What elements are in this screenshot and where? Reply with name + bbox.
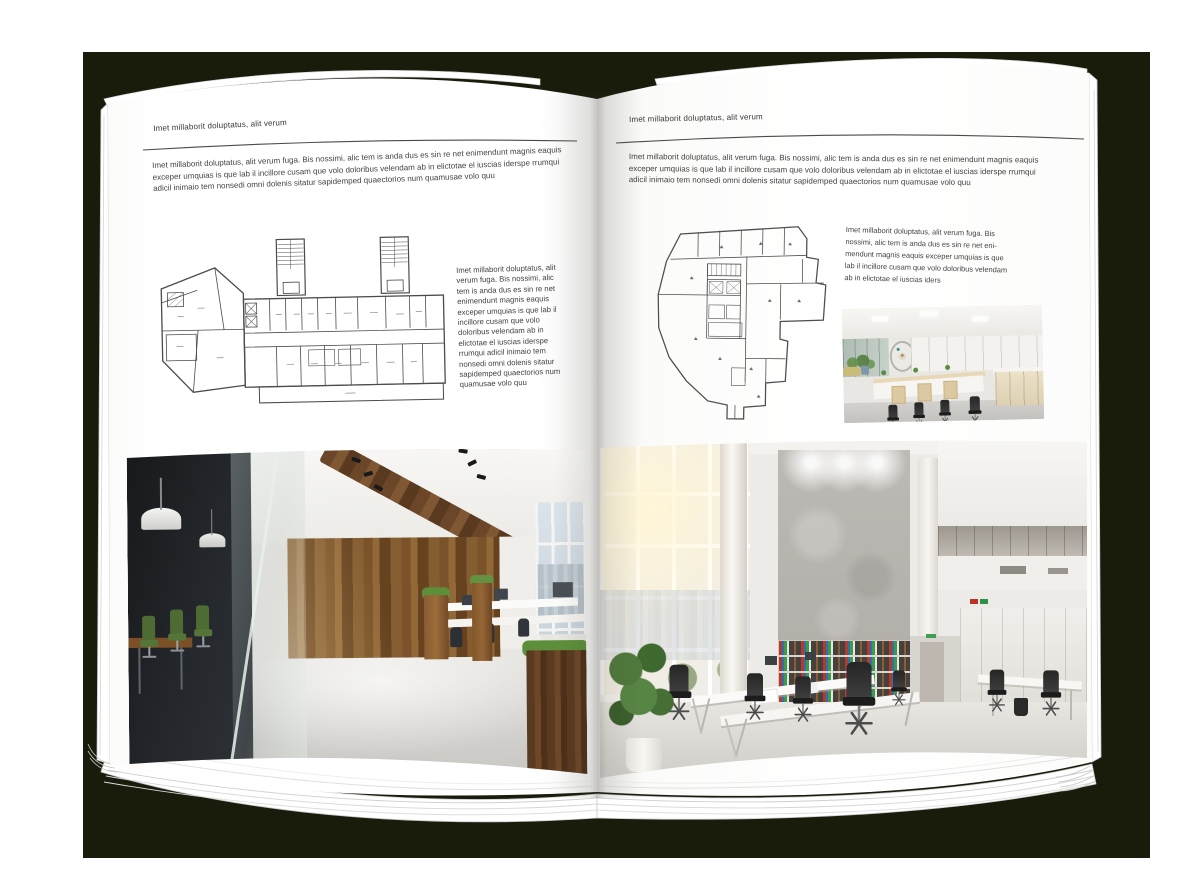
black-chair — [913, 402, 925, 423]
green-chair — [140, 616, 158, 660]
light-panel — [972, 316, 988, 321]
vent — [1000, 566, 1026, 574]
green-chair — [194, 605, 212, 649]
desk-leg — [1070, 690, 1072, 720]
safety-sign-green — [980, 599, 988, 604]
monitor — [805, 652, 816, 660]
safety-sign-red — [970, 599, 978, 604]
concrete-wall — [778, 450, 910, 662]
black-chair — [968, 396, 982, 423]
plant-pot — [626, 738, 662, 772]
door — [920, 642, 944, 702]
planter-box — [472, 583, 493, 661]
monitor — [553, 582, 573, 597]
green-chair — [168, 609, 186, 653]
partitions — [910, 335, 1043, 372]
drawer-unit — [891, 386, 905, 404]
pendant-lamp — [199, 533, 225, 547]
stair-accent — [901, 354, 904, 357]
black-chair — [887, 405, 899, 423]
glass-meeting-room — [127, 446, 308, 768]
potted-plant-leaves — [600, 636, 686, 746]
desk-plant — [945, 365, 950, 370]
planter-box — [424, 595, 449, 659]
page-stack-left-edge — [97, 103, 110, 764]
sofa-yellow — [843, 367, 861, 376]
balcony-slot — [938, 526, 1087, 556]
planter-box-large — [526, 650, 587, 777]
right-plan-caption: Imet millaborit doluptatus, alit verum f… — [844, 224, 1010, 289]
pendant-lamp — [141, 508, 181, 530]
black-chair — [988, 670, 1007, 710]
left-plan-caption: Imet millaborit doluptatus, alit verum f… — [456, 263, 566, 391]
stair-accent — [897, 348, 900, 351]
small-office-photo — [842, 305, 1044, 423]
left-floor-plan-image — [156, 233, 452, 417]
desk-plant — [881, 370, 886, 375]
cabinets — [960, 608, 1087, 704]
lamp-cord — [160, 478, 162, 510]
chair-blue — [861, 366, 869, 375]
mezzanine — [938, 440, 1087, 526]
exit-sign — [926, 634, 936, 638]
table-leg — [180, 648, 182, 690]
light-panel — [872, 316, 888, 321]
right-office-photo — [600, 440, 1087, 782]
desk-plant — [913, 368, 918, 373]
monitor — [765, 656, 777, 665]
black-chair — [843, 662, 876, 732]
left-office-photo — [127, 444, 588, 780]
black-chair — [891, 670, 907, 704]
vent — [1048, 568, 1068, 574]
office-chair-dark — [518, 618, 529, 636]
office-chair-dark — [450, 627, 462, 647]
right-floor-plan-image — [649, 220, 840, 425]
right-page-intro: Imet millaborit doluptatus, alit verum f… — [629, 151, 1044, 190]
light-panel — [920, 311, 938, 316]
black-chair — [793, 676, 813, 720]
right-header-rule — [615, 128, 1085, 146]
black-chair — [1041, 670, 1061, 714]
black-chair — [745, 673, 766, 718]
black-chair — [939, 400, 951, 423]
wood-cabinet — [995, 371, 1044, 406]
drawer-unit — [943, 381, 957, 399]
lamp-cord — [211, 509, 212, 535]
monitor — [494, 589, 508, 600]
drawer-unit — [917, 383, 931, 401]
waste-bin — [1014, 698, 1028, 716]
